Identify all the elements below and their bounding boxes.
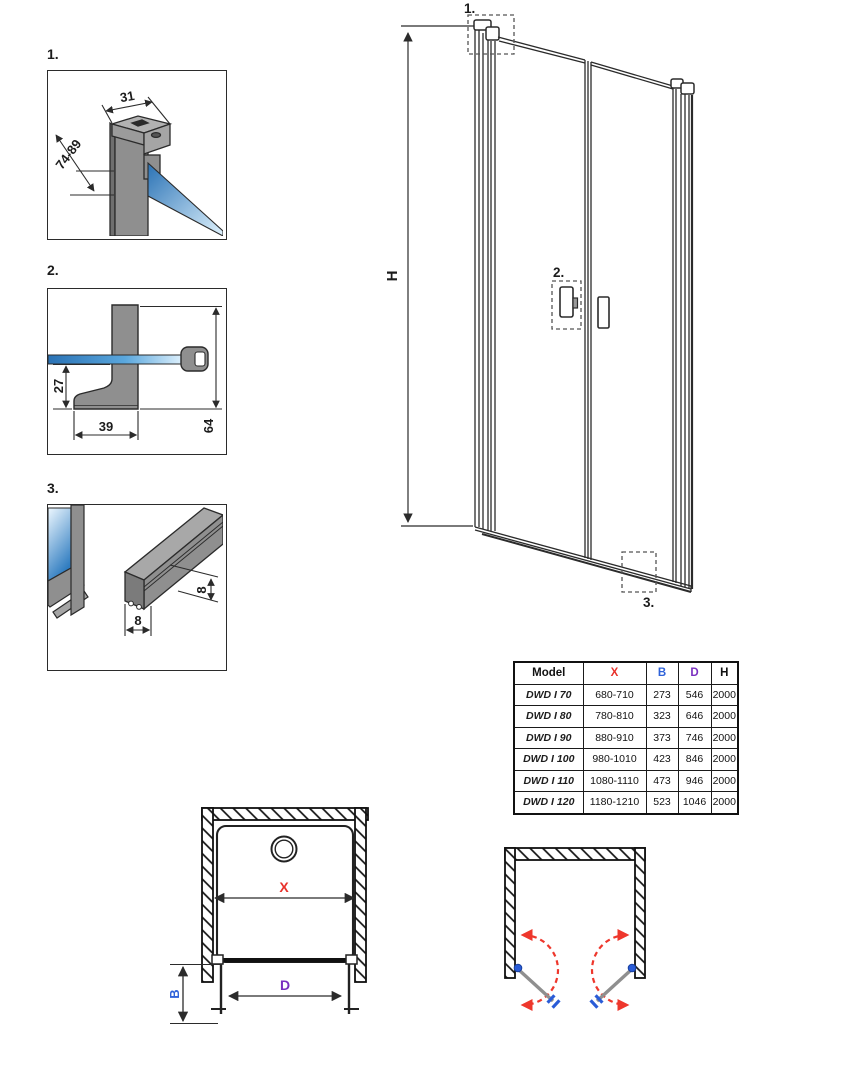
dim-label-27: 27	[51, 379, 66, 393]
cell-h: 2000	[711, 706, 738, 728]
cell-b: 273	[646, 684, 678, 706]
size-table: Model X B D H DWD I 70 680-710 273 546 2…	[513, 661, 739, 815]
cell-x: 980-1010	[583, 749, 646, 771]
dim-label-39: 39	[99, 419, 113, 434]
glass-end-cap	[181, 347, 208, 371]
col-header-b: B	[646, 662, 678, 684]
cell-x: 1080-1110	[583, 770, 646, 792]
elevation-callout-1: 1.	[464, 1, 475, 16]
col-header-d: D	[678, 662, 711, 684]
cell-b: 423	[646, 749, 678, 771]
detail-2-drawing: 27 39 64	[48, 289, 223, 451]
dim-label-31: 31	[119, 88, 136, 105]
swing-arcs	[523, 935, 627, 1005]
detail-2-label: 2.	[47, 262, 59, 278]
cell-d: 546	[678, 684, 711, 706]
cell-d: 846	[678, 749, 711, 771]
walls	[505, 848, 645, 978]
detail-2-box: 27 39 64	[47, 288, 227, 455]
detail-1-box: 31 74-89	[47, 70, 227, 240]
cell-d: 1046	[678, 792, 711, 814]
cell-h: 2000	[711, 727, 738, 749]
cell-d: 646	[678, 706, 711, 728]
hinge-dot	[514, 964, 522, 972]
cell-model: DWD I 120	[514, 792, 583, 814]
cell-x: 1180-1210	[583, 792, 646, 814]
cell-d: 746	[678, 727, 711, 749]
hinge-dot	[628, 964, 636, 972]
cell-model: DWD I 90	[514, 727, 583, 749]
elevation-callout-3: 3.	[643, 595, 654, 610]
cell-h: 2000	[711, 749, 738, 771]
cell-x: 680-710	[583, 684, 646, 706]
dim-label-8-horizontal: 8	[134, 613, 141, 628]
glass-panel	[48, 355, 188, 364]
col-header-model: Model	[514, 662, 583, 684]
dimension-H	[401, 26, 480, 526]
cell-b: 323	[646, 706, 678, 728]
table-row: DWD I 90 880-910 373 746 2000	[514, 727, 738, 749]
col-header-h: H	[711, 662, 738, 684]
table-row: DWD I 80 780-810 323 646 2000	[514, 706, 738, 728]
glass-panel	[148, 163, 223, 236]
detail-3-drawing: 8 8	[48, 505, 223, 667]
left-wall-profile	[474, 20, 499, 531]
dim-label-B: B	[167, 989, 182, 998]
dim-label-64: 64	[201, 418, 216, 433]
cell-model: DWD I 110	[514, 770, 583, 792]
detail-1-drawing: 31 74-89	[48, 71, 223, 236]
cell-b: 473	[646, 770, 678, 792]
col-header-x: X	[583, 662, 646, 684]
bottom-threshold	[475, 527, 691, 592]
cell-x: 780-810	[583, 706, 646, 728]
table-row: DWD I 120 1180-1210 523 1046 2000	[514, 792, 738, 814]
spec-sheet-page: 1.	[0, 0, 860, 1080]
cell-x: 880-910	[583, 727, 646, 749]
door-swing-diagram	[490, 840, 665, 1045]
cell-model: DWD I 70	[514, 684, 583, 706]
dim-label-D: D	[280, 977, 290, 993]
cell-h: 2000	[711, 792, 738, 814]
table-header-row: Model X B D H	[514, 662, 738, 684]
cell-model: DWD I 100	[514, 749, 583, 771]
dim-label-8-vertical: 8	[194, 586, 209, 593]
center-door-gap	[585, 60, 591, 560]
cell-b: 373	[646, 727, 678, 749]
cell-d: 946	[678, 770, 711, 792]
table-row: DWD I 100 980-1010 423 846 2000	[514, 749, 738, 771]
dim-label-X: X	[279, 879, 289, 895]
cell-h: 2000	[711, 684, 738, 706]
cell-h: 2000	[711, 770, 738, 792]
detail-3-label: 3.	[47, 480, 59, 496]
cell-model: DWD I 80	[514, 706, 583, 728]
cell-b: 523	[646, 792, 678, 814]
dim-label-74-89: 74-89	[52, 137, 84, 173]
elevation-callout-2: 2.	[553, 265, 564, 280]
plan-view-drawing: X B D	[150, 795, 410, 1080]
detail-1-label: 1.	[47, 46, 59, 62]
table-row: DWD I 70 680-710 273 546 2000	[514, 684, 738, 706]
right-wall-profile	[671, 79, 694, 589]
table-row: DWD I 110 1080-1110 473 946 2000	[514, 770, 738, 792]
detail-3-box: 8 8	[47, 504, 227, 671]
door-elevation-drawing: H	[385, 0, 735, 625]
dim-label-H: H	[385, 271, 401, 282]
